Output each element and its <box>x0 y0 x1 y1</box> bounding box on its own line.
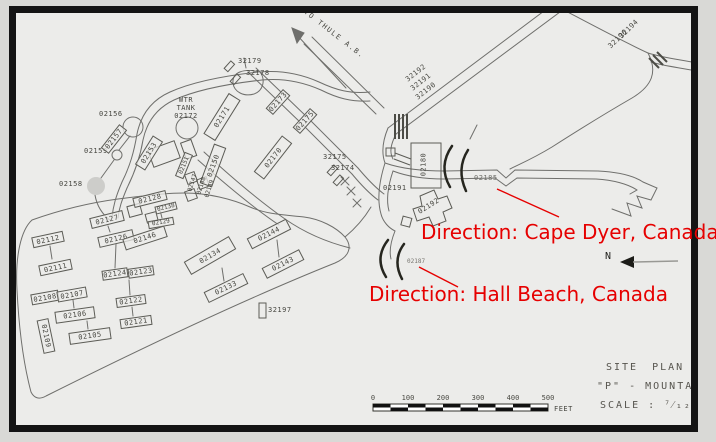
site-plan-screenshot: TO THULE A.B. 32179 32178 WTR TANK 02172… <box>0 0 716 442</box>
title-scale: SCALE : ⁷⁄₁₂″ <box>600 400 700 411</box>
north-label: N <box>605 253 612 261</box>
scale-tick-0: 0 <box>358 394 388 402</box>
water-tank-label: WTR TANK 02172 <box>165 96 207 120</box>
building-label-cut-021: 021 <box>690 50 715 77</box>
water-tank-line2: TANK <box>165 104 207 112</box>
scale-tick-200: 200 <box>428 394 458 402</box>
label-32178: 32178 <box>246 69 270 77</box>
label-32179: 32179 <box>238 57 262 65</box>
water-tank-line1: WTR <box>165 96 207 104</box>
roads <box>17 2 716 398</box>
water-tank-icon <box>176 117 198 139</box>
label-02185: 02185 <box>474 174 498 182</box>
title-p-mountain: "P" - MOUNTAIN <box>597 381 709 392</box>
building-label-02180: 02180 <box>420 144 433 186</box>
hatched-buildings <box>395 52 667 139</box>
scale-tick-100: 100 <box>393 394 423 402</box>
label-02191: 02191 <box>383 184 407 192</box>
label-02187: 02187 <box>407 258 425 266</box>
scale-bar <box>373 404 548 411</box>
label-02158: 02158 <box>59 180 83 188</box>
water-tank-line3: 02172 <box>165 112 207 120</box>
scale-tick-400: 400 <box>498 394 528 402</box>
scale-tick-300: 300 <box>463 394 493 402</box>
label-32174: 32174 <box>331 164 355 172</box>
title-site-plan: SITE PLAN <box>606 362 684 373</box>
label-32197: 32197 <box>268 306 292 314</box>
site-plan-map: TO THULE A.B. 32179 32178 WTR TANK 02172… <box>0 0 716 442</box>
north-arrow-icon <box>620 256 678 268</box>
label-32175: 32175 <box>323 153 347 161</box>
scale-tick-500: 500 <box>533 394 563 402</box>
scale-unit-label: FEET <box>554 405 573 413</box>
label-02156: 02156 <box>99 110 123 118</box>
